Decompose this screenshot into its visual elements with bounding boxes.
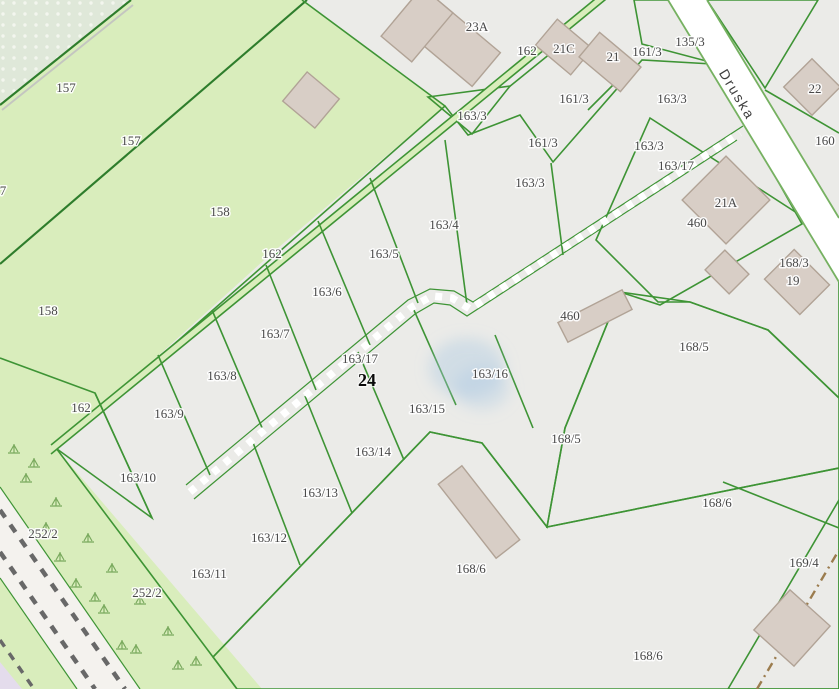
parcel-label: 252/2 bbox=[28, 526, 58, 541]
parcel-label: 163/9 bbox=[154, 406, 184, 421]
address-number-label: 24 bbox=[358, 370, 376, 390]
parcel-label: 460 bbox=[560, 308, 580, 323]
parcel-label: 162 bbox=[71, 400, 91, 415]
parcel-label: 163/14 bbox=[355, 444, 392, 459]
parcel-label: 158 bbox=[38, 303, 58, 318]
parcel-label: 160 bbox=[815, 133, 835, 148]
parcel-label: 163/5 bbox=[369, 246, 399, 261]
parcel-label: 163/3 bbox=[457, 108, 487, 123]
parcel-label: 7 bbox=[0, 183, 7, 198]
parcel-label: 135/3 bbox=[675, 34, 705, 49]
parcel-label: 22 bbox=[809, 81, 822, 96]
parcel-label: 163/3 bbox=[515, 175, 545, 190]
parcel-label: 169/4 bbox=[789, 555, 819, 570]
parcel-label: 21A bbox=[715, 195, 738, 210]
parcel-label: 163/10 bbox=[120, 470, 156, 485]
map-canvas[interactable]: 157157158158716216216223A21C21161/3161/3… bbox=[0, 0, 839, 689]
parcel-label: 161/3 bbox=[632, 44, 662, 59]
parcel-label: 21 bbox=[607, 49, 620, 64]
parcel-label: 161/3 bbox=[528, 135, 558, 150]
parcel-label: 163/3 bbox=[634, 138, 664, 153]
parcel-label: 163/4 bbox=[429, 217, 459, 232]
parcel-label: 168/5 bbox=[679, 339, 709, 354]
parcel-label: 161/3 bbox=[559, 91, 589, 106]
parcel-label: 168/6 bbox=[702, 495, 732, 510]
parcel-label: 168/6 bbox=[456, 561, 486, 576]
parcel-label: 163/16 bbox=[472, 366, 509, 381]
parcel-label: 163/17 bbox=[658, 158, 695, 173]
parcel-label: 163/3 bbox=[657, 91, 687, 106]
parcel-label: 19 bbox=[787, 273, 800, 288]
parcel-label: 460 bbox=[687, 215, 707, 230]
parcel-label: 163/7 bbox=[260, 326, 290, 341]
parcel-label: 168/3 bbox=[779, 255, 809, 270]
parcel-label: 168/6 bbox=[633, 648, 663, 663]
parcel-label: 157 bbox=[56, 80, 76, 95]
parcel-label: 163/6 bbox=[312, 284, 342, 299]
parcel-label: 163/8 bbox=[207, 368, 237, 383]
parcel-label: 158 bbox=[210, 204, 230, 219]
parcel-label: 162 bbox=[517, 43, 537, 58]
parcel-label: 163/15 bbox=[409, 401, 445, 416]
parcel-label: 163/13 bbox=[302, 485, 338, 500]
parcel-label: 21C bbox=[553, 41, 575, 56]
cadastral-map-svg: 157157158158716216216223A21C21161/3161/3… bbox=[0, 0, 839, 689]
parcel-label: 162 bbox=[262, 246, 282, 261]
parcel-label: 252/2 bbox=[132, 585, 162, 600]
parcel-label: 163/17 bbox=[342, 351, 379, 366]
parcel-label: 157 bbox=[121, 133, 141, 148]
parcel-label: 163/12 bbox=[251, 530, 287, 545]
parcel-label: 163/11 bbox=[191, 566, 227, 581]
parcel-label: 168/5 bbox=[551, 431, 581, 446]
parcel-label: 23A bbox=[466, 19, 489, 34]
